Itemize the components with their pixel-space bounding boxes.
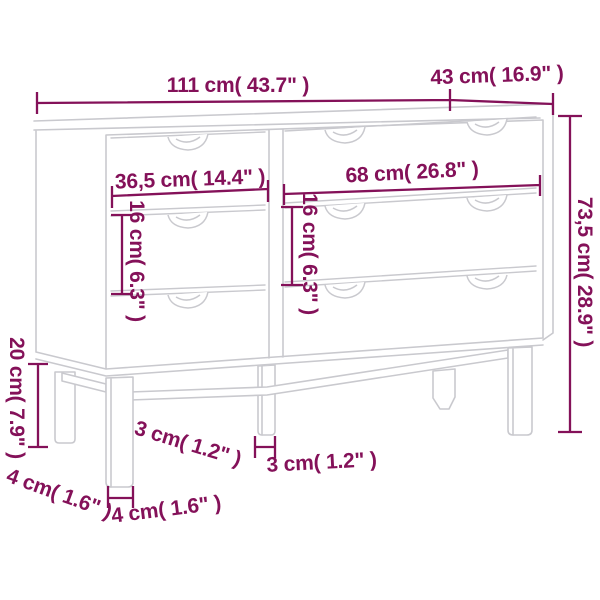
diagram-canvas: 111 cm( 43.7" ) 43 cm( 16.9" ) 36,5 cm( …: [0, 0, 600, 600]
dimension-diagram: 111 cm( 43.7" ) 43 cm( 16.9" ) 36,5 cm( …: [0, 0, 600, 600]
dim-label-middle-leg: 3 cm( 1.2" ): [266, 448, 377, 477]
cabinet-silhouette: [34, 103, 553, 377]
dimension-middle-leg-thickness: 3 cm( 1.2" ) 3 cm( 1.2" ): [132, 417, 378, 477]
dim-label-top-depth: 43 cm( 16.9" ): [430, 62, 564, 90]
dim-label-right-drawer-height: 16 cm( 6.3" ): [298, 193, 321, 315]
back-right-leg: [433, 369, 455, 409]
front-right-leg: [508, 347, 532, 435]
dim-label-middle-leg-rotated: 3 cm( 1.2" ): [132, 417, 244, 471]
dim-label-overall-height: 73,5 cm( 28.9" ): [573, 197, 596, 347]
front-left-leg: [106, 377, 133, 487]
cabinet-body: [34, 103, 553, 377]
dim-label-left-drawer-height: 16 cm( 6.3" ): [125, 200, 148, 322]
dim-label-front-leg-rotated: 4 cm( 1.6" ): [3, 464, 114, 523]
dim-line-leg-height: [28, 364, 48, 447]
middle-back-leg: [258, 365, 275, 435]
dimension-overall-height: 73,5 cm( 28.9" ): [558, 116, 596, 432]
dim-label-leg-height: 20 cm( 7.9" ): [5, 337, 28, 459]
dim-label-top-width: 111 cm( 43.7" ): [167, 74, 309, 97]
